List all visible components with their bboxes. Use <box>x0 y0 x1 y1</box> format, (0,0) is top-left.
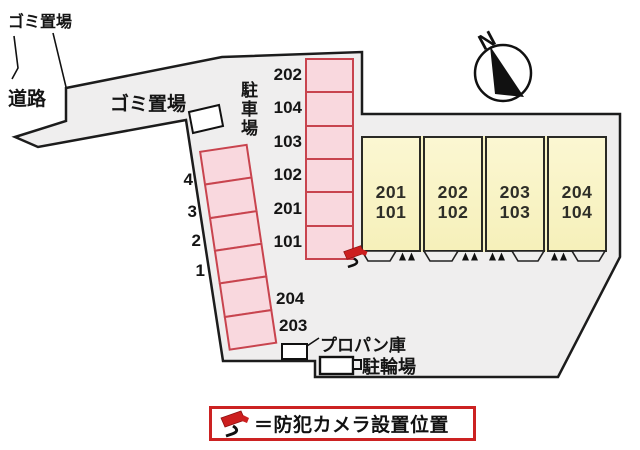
building-unit: 204 104 <box>547 136 607 252</box>
space-label-204: 204 <box>276 289 304 309</box>
propane-box <box>282 344 307 359</box>
garbage-area-label-top: ゴミ置場 <box>8 8 72 32</box>
space-label-202: 202 <box>255 65 302 85</box>
building: 201 101 202 102 203 103 204 104 <box>361 136 607 252</box>
space-label-201: 201 <box>255 199 302 219</box>
svg-text:N: N <box>474 26 500 56</box>
space-label-1: 1 <box>185 261 205 281</box>
security-camera-icon <box>219 409 251 439</box>
unit-number-lower: 103 <box>500 202 531 222</box>
bicycle-label: 駐輪場 <box>362 353 416 379</box>
garbage-area-label-mid: ゴミ置場 <box>110 89 186 116</box>
parking-column-right <box>305 58 354 260</box>
camera-legend: ＝防犯カメラ設置位置 <box>209 406 476 441</box>
parking-space <box>224 309 278 351</box>
space-label-2: 2 <box>181 231 201 251</box>
site-plan: 201 101 202 102 203 103 204 104 <box>0 0 640 450</box>
propane-leader-line <box>307 338 319 346</box>
unit-number-upper: 201 <box>376 182 407 202</box>
parking-space <box>305 191 354 226</box>
space-label-101: 101 <box>255 232 302 252</box>
unit-number-upper: 204 <box>562 182 593 202</box>
entrance-step-triangles <box>399 253 567 261</box>
garbage-box <box>189 105 223 133</box>
space-label-203: 203 <box>279 316 307 336</box>
parking-space <box>305 225 354 260</box>
unit-number-upper: 202 <box>438 182 469 202</box>
unit-number-upper: 203 <box>500 182 531 202</box>
unit-number-lower: 104 <box>562 202 593 222</box>
garbage-leader-line <box>12 36 18 79</box>
bicycle-box-tab <box>353 360 361 369</box>
space-label-4: 4 <box>173 170 193 190</box>
space-label-104: 104 <box>255 98 302 118</box>
entrance-porches <box>362 251 605 261</box>
garbage-leader-line-2 <box>53 33 66 87</box>
building-unit: 202 102 <box>423 136 483 252</box>
space-label-102: 102 <box>255 165 302 185</box>
parking-space <box>305 58 354 93</box>
unit-number-lower: 102 <box>438 202 469 222</box>
building-unit: 201 101 <box>361 136 421 252</box>
road-label: 道路 <box>8 84 46 111</box>
parking-space <box>305 158 354 193</box>
space-label-3: 3 <box>177 202 197 222</box>
north-compass-icon: N <box>474 26 531 101</box>
legend-text: ＝防犯カメラ設置位置 <box>254 410 449 437</box>
unit-number-lower: 101 <box>376 202 407 222</box>
parking-space <box>305 125 354 160</box>
parking-space <box>305 91 354 126</box>
bicycle-box <box>320 357 353 374</box>
building-unit: 203 103 <box>485 136 545 252</box>
space-label-103: 103 <box>255 132 302 152</box>
